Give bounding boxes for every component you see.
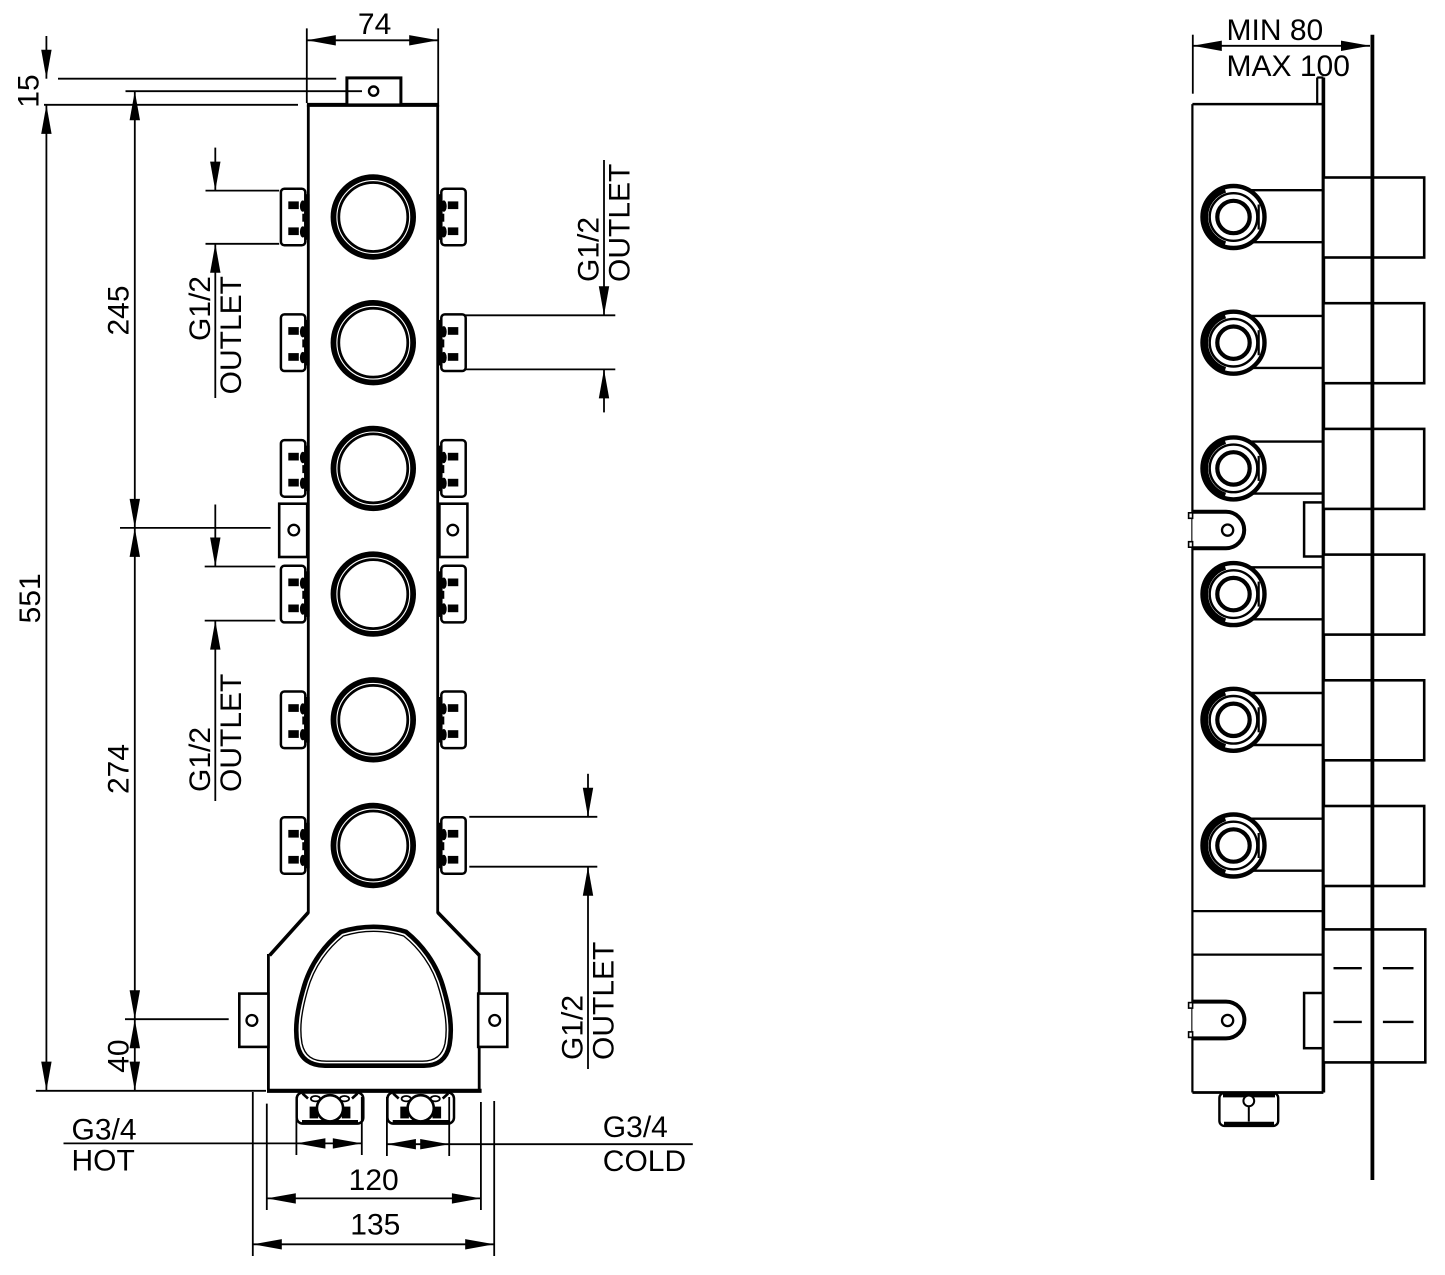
svg-text:245: 245 [102, 285, 135, 335]
svg-text:COLD: COLD [603, 1145, 686, 1178]
svg-text:OUTLET: OUTLET [215, 276, 248, 394]
svg-text:OUTLET: OUTLET [215, 674, 248, 792]
svg-text:15: 15 [13, 74, 46, 107]
svg-text:G3/4: G3/4 [72, 1113, 137, 1146]
svg-text:40: 40 [102, 1039, 135, 1072]
svg-text:G1/2: G1/2 [557, 995, 590, 1060]
svg-text:OUTLET: OUTLET [588, 942, 621, 1060]
svg-text:HOT: HOT [72, 1144, 135, 1177]
svg-text:G1/2: G1/2 [573, 217, 606, 282]
svg-text:G1/2: G1/2 [184, 276, 217, 341]
svg-text:MIN 80: MIN 80 [1227, 14, 1324, 47]
svg-text:MAX 100: MAX 100 [1227, 50, 1350, 83]
svg-text:120: 120 [349, 1164, 399, 1197]
svg-text:G3/4: G3/4 [603, 1111, 668, 1144]
svg-text:135: 135 [350, 1209, 400, 1242]
svg-text:551: 551 [14, 573, 47, 623]
svg-text:74: 74 [358, 8, 391, 41]
svg-text:274: 274 [102, 744, 135, 794]
svg-text:G1/2: G1/2 [184, 727, 217, 792]
svg-text:OUTLET: OUTLET [604, 164, 637, 282]
